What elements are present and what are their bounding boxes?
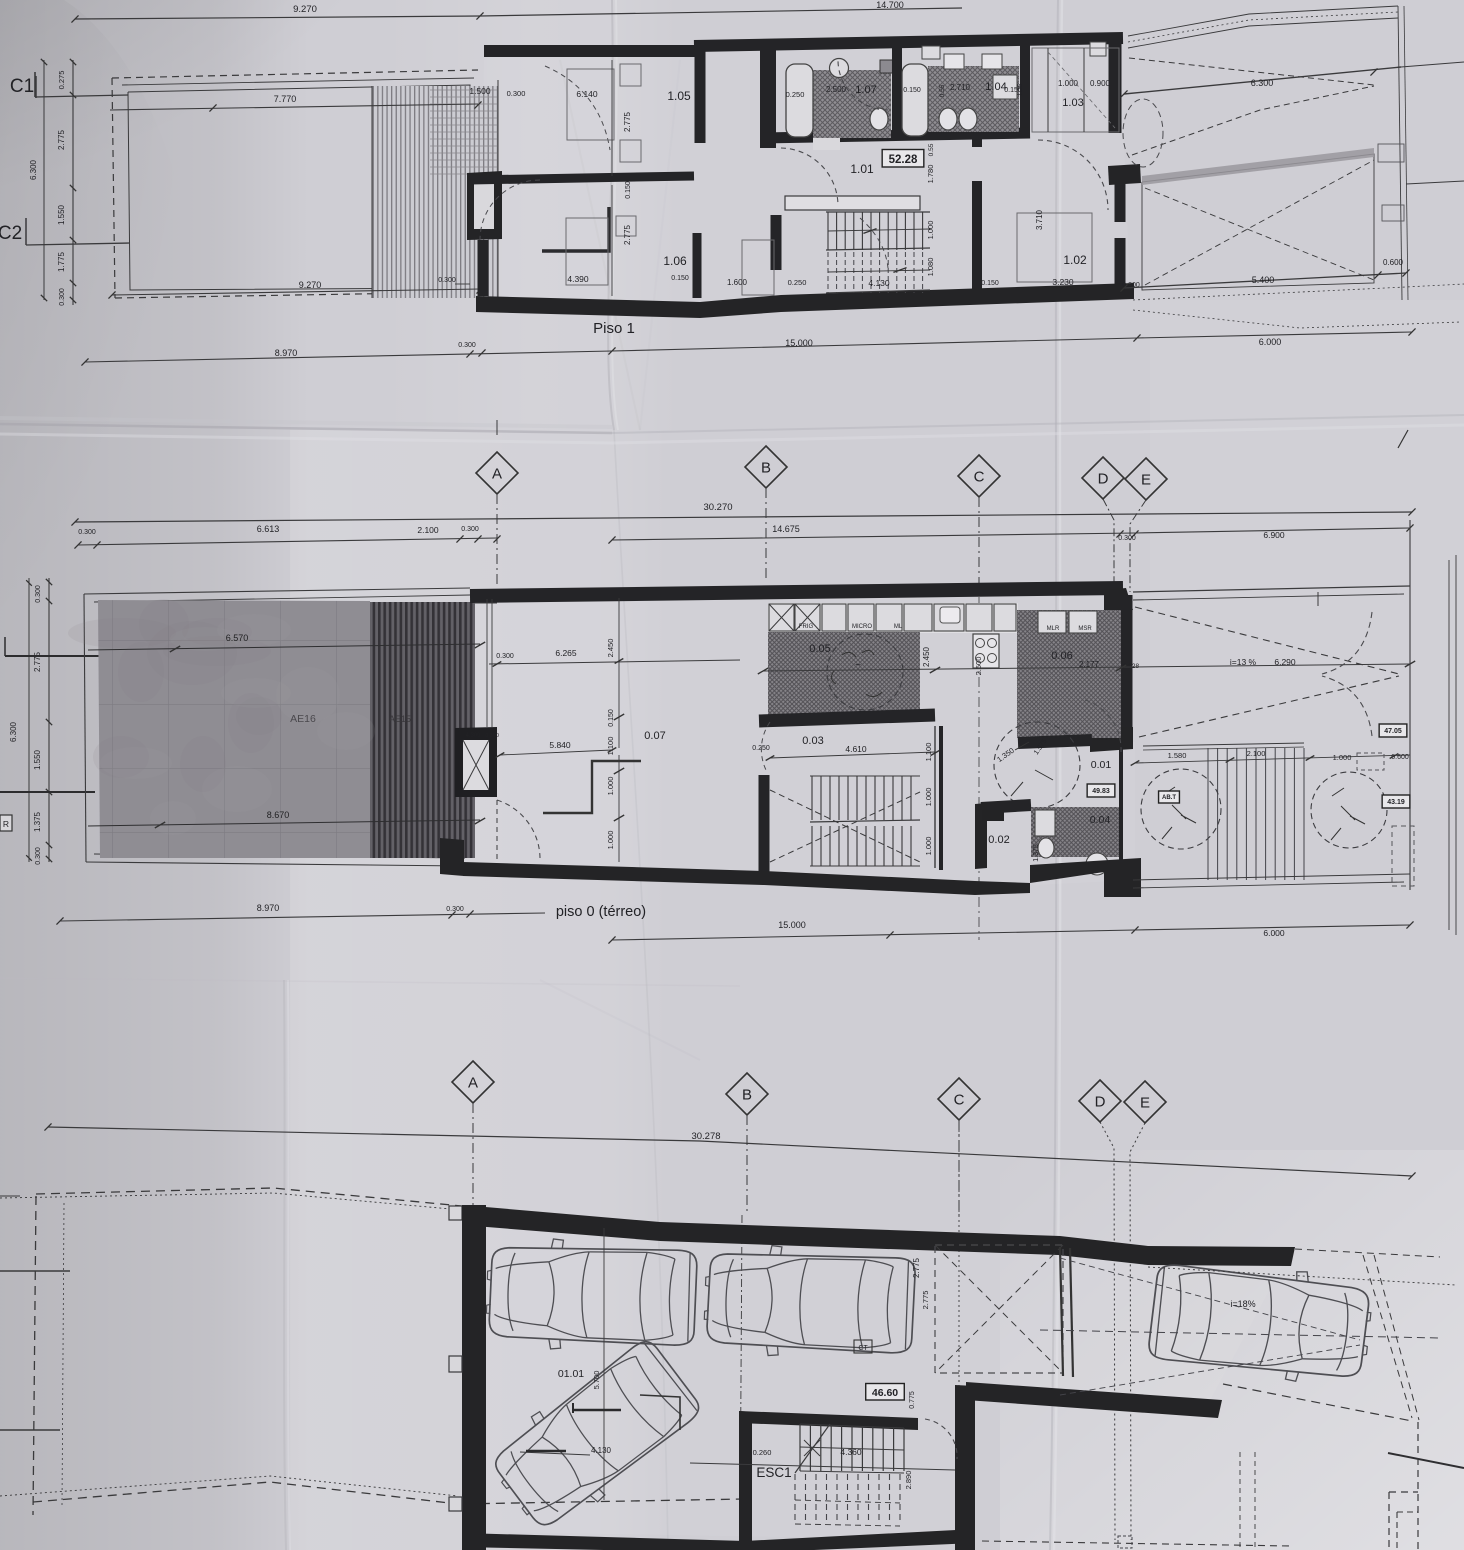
svg-text:0.06: 0.06 — [1051, 650, 1072, 662]
svg-text:1.500: 1.500 — [469, 86, 491, 96]
svg-text:0.600: 0.600 — [1391, 754, 1409, 761]
svg-text:~: ~ — [855, 660, 861, 671]
svg-text:1.580: 1.580 — [1168, 751, 1187, 760]
svg-text:MLR: MLR — [1047, 626, 1060, 632]
svg-text:0.02: 0.02 — [988, 834, 1009, 846]
svg-text:1.05: 1.05 — [667, 89, 691, 103]
svg-text:2.100: 2.100 — [417, 525, 439, 535]
svg-text:2.775: 2.775 — [33, 651, 42, 672]
svg-text:6.613: 6.613 — [257, 524, 280, 534]
svg-text:6.290: 6.290 — [1274, 657, 1296, 667]
svg-text:4.130: 4.130 — [591, 1446, 612, 1455]
svg-text:5.840: 5.840 — [549, 740, 571, 750]
svg-text:1.25: 1.25 — [1017, 83, 1024, 96]
svg-text:49.83: 49.83 — [1092, 788, 1110, 795]
svg-text:2.710: 2.710 — [950, 83, 971, 92]
svg-text:0.300: 0.300 — [35, 585, 42, 603]
svg-text:6.140: 6.140 — [576, 89, 598, 99]
svg-text:4.300: 4.300 — [465, 733, 481, 739]
svg-text:6.265: 6.265 — [555, 648, 577, 658]
svg-text:2.890: 2.890 — [904, 1471, 913, 1490]
svg-text:4.610: 4.610 — [845, 744, 867, 754]
svg-text:30.270: 30.270 — [703, 502, 732, 513]
svg-text:6.300: 6.300 — [29, 159, 38, 180]
svg-text:15.000: 15.000 — [785, 338, 813, 348]
svg-text:1.375: 1.375 — [1033, 844, 1040, 862]
svg-text:0.250: 0.250 — [788, 278, 807, 287]
svg-text:C: C — [954, 1092, 965, 1109]
svg-text:0.600: 0.600 — [1383, 258, 1404, 267]
svg-text:B: B — [742, 1087, 752, 1104]
svg-text:0.300: 0.300 — [507, 89, 526, 98]
svg-text:01.01: 01.01 — [558, 1368, 584, 1380]
svg-text:15.000: 15.000 — [778, 920, 806, 930]
svg-text:3.230: 3.230 — [1052, 277, 1074, 287]
svg-text:8.670: 8.670 — [267, 810, 290, 820]
svg-text:0.300: 0.300 — [485, 733, 499, 739]
svg-text:1.550: 1.550 — [33, 749, 42, 770]
svg-text:0.775: 0.775 — [909, 1391, 916, 1409]
svg-text:CT: CT — [858, 1345, 868, 1352]
svg-text:1.000: 1.000 — [606, 831, 615, 850]
svg-text:14.675: 14.675 — [772, 524, 800, 534]
svg-text:i=13 %: i=13 % — [1230, 657, 1257, 667]
svg-text:Piso 1: Piso 1 — [593, 320, 635, 337]
svg-text:0.04: 0.04 — [1090, 814, 1111, 826]
svg-text:0.300: 0.300 — [78, 529, 96, 536]
svg-text:AB.T: AB.T — [1162, 795, 1176, 801]
svg-text:0.300: 0.300 — [1118, 535, 1136, 542]
svg-text:6.000: 6.000 — [1263, 928, 1285, 938]
svg-text:E: E — [1141, 472, 1151, 489]
svg-text:0.300: 0.300 — [35, 847, 42, 865]
svg-text:C1: C1 — [10, 76, 34, 97]
svg-text:30.278: 30.278 — [691, 1131, 720, 1142]
svg-text:46.60: 46.60 — [872, 1387, 898, 1399]
svg-text:8.970: 8.970 — [275, 348, 298, 358]
svg-text:0.150: 0.150 — [981, 280, 999, 287]
svg-text:0.150: 0.150 — [671, 275, 689, 282]
svg-text:6.570: 6.570 — [226, 633, 249, 643]
svg-text:2.775: 2.775 — [921, 1291, 930, 1310]
svg-text:0.300: 0.300 — [438, 277, 456, 284]
svg-text:43.19: 43.19 — [1387, 799, 1405, 806]
svg-text:C: C — [974, 469, 985, 486]
svg-text:5.700: 5.700 — [592, 1371, 601, 1390]
svg-text:1.550: 1.550 — [57, 204, 66, 225]
svg-text:A: A — [468, 1075, 478, 1092]
svg-text:0.300: 0.300 — [496, 653, 514, 660]
svg-text:9.270: 9.270 — [293, 4, 317, 15]
svg-text:0.275: 0.275 — [57, 71, 66, 90]
svg-text:6.000: 6.000 — [1259, 337, 1282, 347]
svg-text:C2: C2 — [0, 223, 22, 244]
svg-text:6.300: 6.300 — [1251, 78, 1274, 88]
svg-text:0.01: 0.01 — [1091, 759, 1112, 771]
svg-text:1.100: 1.100 — [606, 737, 615, 756]
svg-text:0.250: 0.250 — [786, 90, 805, 99]
svg-text:6.900: 6.900 — [1263, 530, 1285, 540]
svg-text:1.02: 1.02 — [1063, 253, 1087, 267]
svg-text:piso 0 (térreo): piso 0 (térreo) — [556, 904, 646, 920]
svg-text:2.775: 2.775 — [57, 129, 66, 150]
svg-text:52.28: 52.28 — [889, 154, 918, 166]
svg-text:14.700: 14.700 — [876, 0, 904, 10]
svg-text:4.130: 4.130 — [868, 278, 890, 288]
svg-text:0.300: 0.300 — [458, 342, 476, 349]
svg-text:0.55: 0.55 — [928, 143, 935, 156]
svg-text:6.300: 6.300 — [9, 721, 18, 742]
svg-text:2.450: 2.450 — [606, 639, 615, 658]
svg-text:0.150: 0.150 — [608, 709, 615, 727]
svg-text:1.03: 1.03 — [1062, 97, 1083, 109]
svg-text:1.080: 1.080 — [926, 258, 935, 277]
svg-text:2.100: 2.100 — [1247, 749, 1266, 758]
svg-text:0.55: 0.55 — [939, 84, 946, 97]
svg-text:D: D — [1095, 1094, 1106, 1111]
svg-text:D: D — [1098, 471, 1109, 488]
svg-text:5.400: 5.400 — [1252, 275, 1275, 285]
svg-text:1.000: 1.000 — [924, 788, 933, 807]
svg-text:2.775: 2.775 — [623, 111, 632, 132]
svg-text:8.970: 8.970 — [257, 903, 280, 913]
svg-text:0.07: 0.07 — [644, 730, 665, 742]
svg-text:0.05: 0.05 — [809, 643, 830, 655]
svg-text:1.06: 1.06 — [663, 254, 687, 268]
svg-text:0.300: 0.300 — [461, 526, 479, 533]
svg-text:B: B — [761, 460, 771, 477]
svg-text:AE16: AE16 — [290, 713, 316, 725]
svg-text:1.000: 1.000 — [1333, 753, 1352, 762]
svg-text:0.300: 0.300 — [59, 288, 66, 306]
svg-text:AE15: AE15 — [389, 714, 411, 724]
svg-text:E: E — [1140, 1095, 1150, 1112]
svg-text:1.775: 1.775 — [57, 251, 66, 272]
svg-text:1.100: 1.100 — [924, 743, 933, 762]
svg-text:2.775: 2.775 — [912, 1257, 921, 1278]
svg-text:1.375: 1.375 — [33, 811, 42, 832]
svg-text:2.775: 2.775 — [623, 224, 632, 245]
svg-text:1.600: 1.600 — [727, 278, 748, 287]
svg-text:MSR: MSR — [1078, 626, 1092, 632]
svg-text:1.000: 1.000 — [924, 837, 933, 856]
svg-text:0.150: 0.150 — [625, 181, 632, 199]
svg-text:9.270: 9.270 — [299, 280, 322, 290]
svg-text:1.780: 1.780 — [926, 165, 935, 184]
svg-text:4.390: 4.390 — [567, 274, 589, 284]
svg-text:0.03: 0.03 — [802, 735, 823, 747]
svg-text:i=18%: i=18% — [1230, 1299, 1255, 1309]
svg-text:R: R — [3, 819, 9, 829]
svg-text:1.000: 1.000 — [926, 221, 935, 240]
svg-text:1.000: 1.000 — [1058, 79, 1079, 88]
svg-text:A: A — [492, 466, 502, 483]
svg-text:0.900: 0.900 — [1090, 79, 1111, 88]
svg-text:4.360: 4.360 — [840, 1447, 862, 1457]
svg-text:2.450: 2.450 — [922, 646, 931, 667]
svg-text:1.000: 1.000 — [606, 777, 615, 796]
svg-text:MICRO: MICRO — [852, 624, 872, 630]
svg-text:0.260: 0.260 — [753, 1448, 772, 1457]
svg-text:FRIG: FRIG — [799, 624, 814, 630]
svg-text:ML: ML — [894, 624, 903, 630]
svg-text:7.770: 7.770 — [274, 94, 297, 104]
svg-text:ESC1: ESC1 — [756, 1465, 791, 1480]
svg-text:2.500: 2.500 — [974, 657, 983, 676]
svg-text:1.01: 1.01 — [850, 162, 874, 176]
svg-text:1.07: 1.07 — [855, 84, 876, 96]
svg-text:0.300: 0.300 — [446, 906, 464, 913]
svg-text:2.500: 2.500 — [826, 85, 847, 94]
svg-text:47.05: 47.05 — [1384, 728, 1402, 735]
svg-text:3.710: 3.710 — [1035, 209, 1044, 230]
svg-text:0.150: 0.150 — [903, 87, 921, 94]
